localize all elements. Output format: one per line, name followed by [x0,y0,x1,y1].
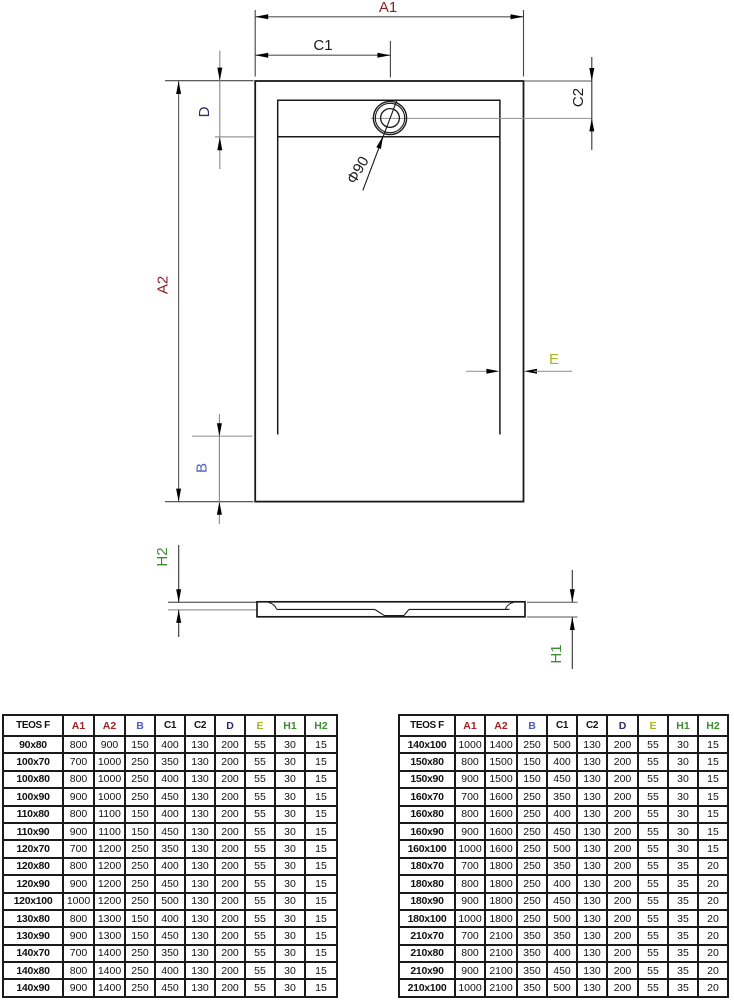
svg-text:H1: H1 [548,644,565,663]
svg-text:C2: C2 [570,88,587,107]
svg-text:B: B [194,463,211,473]
svg-text:E: E [549,351,559,368]
svg-text:D: D [196,106,213,117]
svg-text:Φ90: Φ90 [344,154,373,187]
svg-text:A2: A2 [155,276,172,294]
svg-text:A1: A1 [379,0,397,16]
svg-text:H2: H2 [154,547,171,566]
svg-text:C1: C1 [313,37,332,54]
